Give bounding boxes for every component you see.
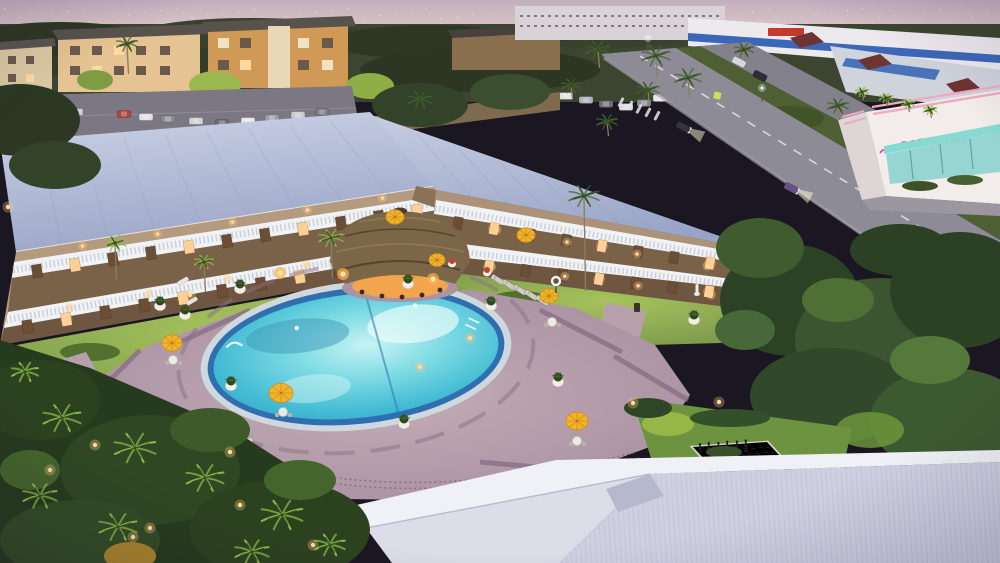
scene-svg: CAR WASH — [0, 0, 1000, 563]
dusk-vignette — [0, 0, 1000, 563]
aerial-photo-scene: Aerial dusk view of a two-story resort h… — [0, 0, 1000, 563]
